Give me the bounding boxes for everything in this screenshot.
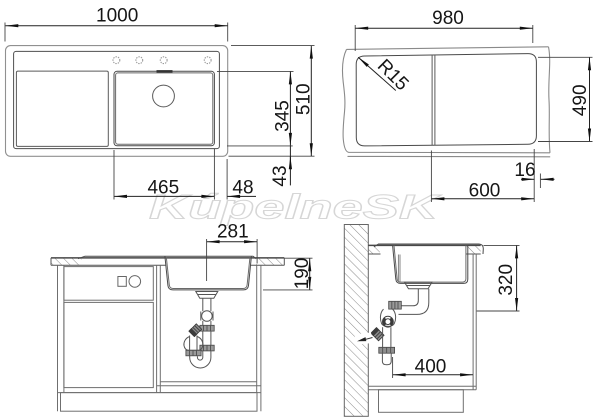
svg-text:R15: R15 — [373, 55, 412, 94]
svg-text:48: 48 — [232, 177, 253, 198]
svg-text:16: 16 — [514, 160, 535, 181]
svg-text:465: 465 — [147, 177, 179, 198]
svg-text:KúpelneSK: KúpelneSK — [149, 189, 442, 227]
svg-text:1000: 1000 — [96, 6, 138, 27]
svg-text:190: 190 — [292, 258, 313, 290]
svg-text:345: 345 — [273, 100, 294, 132]
svg-text:490: 490 — [570, 84, 591, 116]
svg-text:43: 43 — [270, 165, 291, 186]
svg-text:400: 400 — [415, 356, 447, 377]
svg-text:510: 510 — [294, 83, 315, 115]
svg-text:980: 980 — [432, 8, 464, 29]
svg-text:320: 320 — [496, 264, 517, 296]
svg-text:281: 281 — [217, 222, 249, 243]
svg-text:600: 600 — [469, 181, 501, 202]
